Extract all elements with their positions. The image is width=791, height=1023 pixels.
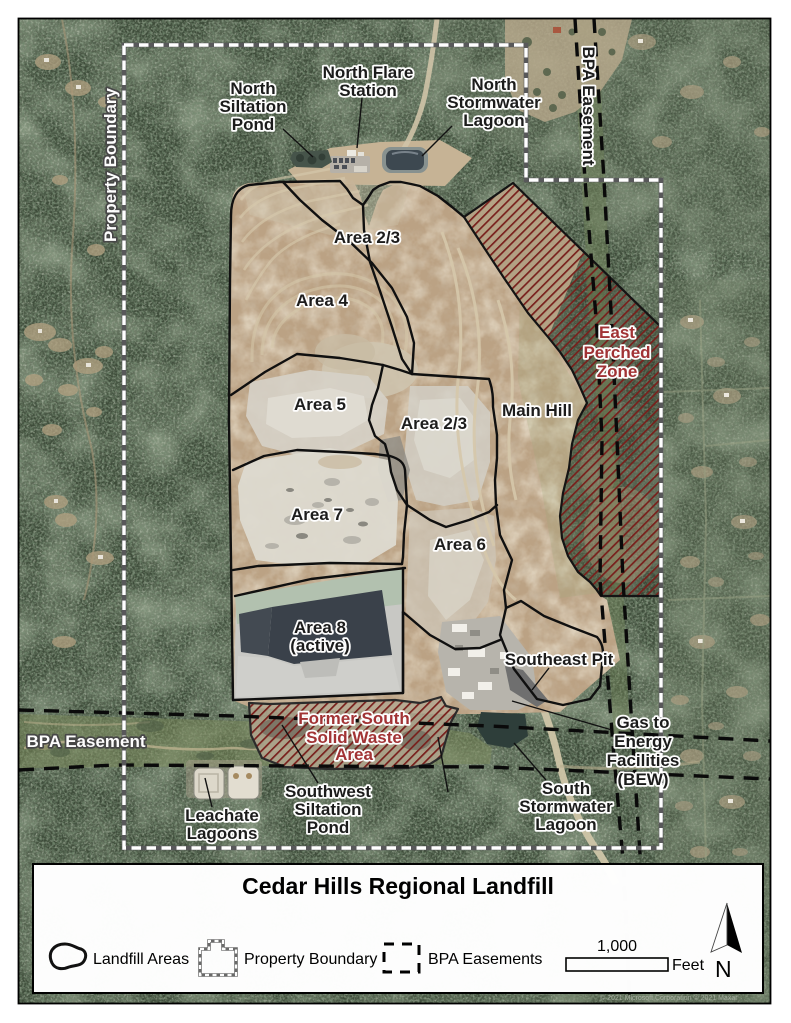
svg-text:Property Boundary: Property Boundary (244, 951, 377, 968)
svg-text:Lagoon: Lagoon (535, 815, 596, 834)
svg-text:Area 2/3: Area 2/3 (334, 228, 400, 247)
svg-text:BPA Easement: BPA Easement (26, 732, 145, 751)
svg-text:East: East (599, 323, 635, 342)
svg-text:Facilities: Facilities (607, 751, 680, 770)
svg-text:(active): (active) (290, 636, 350, 655)
svg-text:Stormwater: Stormwater (447, 93, 541, 112)
svg-text:Pond: Pond (232, 115, 275, 134)
svg-text:Area: Area (335, 745, 373, 764)
svg-text:Siltation: Siltation (219, 97, 286, 116)
svg-text:© 2021 Microsoft Corporation ©: © 2021 Microsoft Corporation © 2021 Maxa… (600, 994, 738, 1002)
svg-text:Siltation: Siltation (294, 800, 361, 819)
svg-text:Cedar Hills Regional Landfill: Cedar Hills Regional Landfill (242, 873, 554, 899)
svg-text:Area 7: Area 7 (291, 505, 343, 524)
svg-text:South: South (542, 779, 590, 798)
svg-text:North: North (471, 75, 516, 94)
svg-text:Energy: Energy (614, 732, 672, 751)
svg-text:North Flare: North Flare (323, 63, 414, 82)
svg-text:Property Boundary: Property Boundary (101, 87, 120, 242)
svg-text:BPA Easements: BPA Easements (428, 951, 542, 968)
svg-text:Southwest: Southwest (285, 782, 371, 801)
svg-text:Landfill Areas: Landfill Areas (93, 951, 189, 968)
svg-text:Leachate: Leachate (185, 806, 259, 825)
svg-text:Area 8: Area 8 (294, 618, 346, 637)
svg-text:Stormwater: Stormwater (519, 797, 613, 816)
svg-text:Area 4: Area 4 (296, 291, 349, 310)
svg-text:Area 6: Area 6 (434, 535, 486, 554)
svg-text:Lagoons: Lagoons (187, 824, 258, 843)
svg-text:(BEW): (BEW) (618, 770, 669, 789)
svg-text:1,000: 1,000 (597, 938, 637, 955)
svg-text:North: North (230, 79, 275, 98)
svg-text:Southeast Pit: Southeast Pit (505, 650, 614, 669)
svg-text:N: N (715, 956, 732, 982)
svg-text:Area 2/3: Area 2/3 (401, 414, 467, 433)
svg-text:Main Hill: Main Hill (502, 401, 572, 420)
svg-text:Feet: Feet (672, 957, 705, 974)
svg-text:Former South: Former South (298, 709, 409, 728)
svg-text:Zone: Zone (597, 362, 638, 381)
svg-text:Pond: Pond (307, 818, 350, 837)
svg-text:Area 5: Area 5 (294, 395, 346, 414)
svg-text:BPA Easement: BPA Easement (579, 46, 598, 165)
svg-text:Lagoon: Lagoon (463, 111, 524, 130)
svg-text:Station: Station (339, 81, 397, 100)
svg-text:Gas to: Gas to (617, 713, 670, 732)
svg-text:Perched: Perched (583, 343, 650, 362)
